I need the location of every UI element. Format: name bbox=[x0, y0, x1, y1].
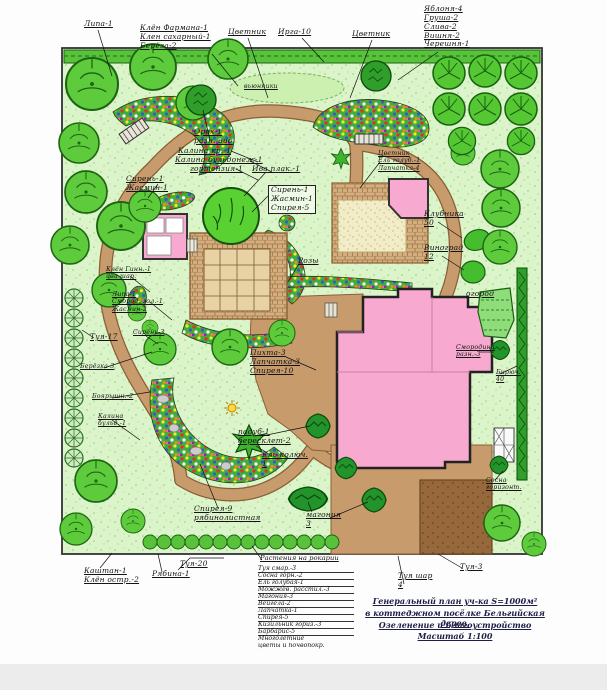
callout-siren-3: Сирень-3 bbox=[133, 329, 164, 336]
callout-smorodina: Смородина разн.-3 bbox=[456, 344, 495, 359]
callout-tuya-20: Туя-20 bbox=[180, 560, 208, 569]
title-line-3: Озеленение и благоустройство bbox=[362, 620, 548, 630]
photo-edge bbox=[0, 664, 607, 690]
callout-lipa: Липа-1 bbox=[84, 20, 113, 29]
weeping-willow bbox=[203, 188, 259, 244]
callout-maple-stack: Клён Фармана-1 Клен сахарный-1 Берёза-2 bbox=[140, 24, 211, 51]
callout-tuya-17: Туя-17 bbox=[90, 333, 118, 342]
callout-ryabina: Рябина-1 bbox=[152, 570, 190, 579]
porch-steps bbox=[325, 303, 337, 317]
callout-tuya-3: Туя-3 bbox=[460, 563, 483, 572]
callout-biryuchina: Бирюч. 40 bbox=[496, 369, 521, 384]
gazebo-area bbox=[332, 179, 428, 263]
legend-header: Растения на рокарии bbox=[260, 554, 339, 562]
garden-plan-page: Липа-1 Клён Фармана-1 Клен сахарный-1 Бе… bbox=[0, 0, 607, 690]
callout-beryozka: Берёзка-3 bbox=[80, 363, 114, 370]
callout-kashtan: Каштан-1 Клён остр.-2 bbox=[84, 567, 139, 585]
callout-sosna-goriz: Сосна горизонт. bbox=[486, 477, 522, 492]
callout-siren-zhasmin: Сирень-1 Жасмин-1 bbox=[126, 175, 168, 193]
callout-el-kolyuchaya: Ель колюч. 1 bbox=[262, 451, 308, 469]
callout-magoniya: магония 3 bbox=[306, 511, 341, 529]
callout-irga: Ирга-10 bbox=[278, 28, 311, 37]
callout-boyaryshnik: Боярышн.-2 bbox=[92, 393, 133, 400]
callout-klubnika: Клубника 50 bbox=[424, 210, 464, 228]
callout-kalina-buld-left: Калина бульд.-1 bbox=[98, 413, 126, 428]
callout-flowerbed-right: Цветник bbox=[352, 30, 390, 39]
callout-gazebo-stack: Цветник Ель голуб.-1 Лапчатка-4 bbox=[378, 150, 420, 172]
callout-padub: падуб-1 бересклет-2 bbox=[238, 428, 291, 446]
callout-fruit-stack: Яблоня-4 Груша-2 Слива-2 Вишня-2 Черешня… bbox=[424, 5, 470, 49]
callout-tuya-shar: Туя шар 4 bbox=[398, 572, 432, 590]
callout-shrub-box: Сирень-1 Жасмин-1 Спирея-5 bbox=[268, 185, 316, 214]
callout-rozy: Розы bbox=[298, 257, 319, 266]
callout-pihta-box: Пихта-3 Лапчатка-3 Спирея-10 bbox=[250, 349, 300, 376]
callout-spireya-ryab: Спирея-9 рябинолистная bbox=[194, 505, 261, 523]
callout-gortenziya: гортензия-1 bbox=[190, 165, 243, 174]
legend-item: Многолетние цветы и почвопокр. bbox=[258, 635, 354, 649]
callout-flowerbed-left: Цветник bbox=[228, 28, 266, 37]
callout-vinograd: Виноград 12 bbox=[424, 244, 463, 262]
title-line-4: Масштаб 1:100 bbox=[362, 631, 548, 641]
callout-lawn-oval: вьюнники bbox=[244, 83, 278, 90]
callout-klen-ginn: Клён Гинн.-1 ива шар. bbox=[106, 266, 151, 281]
patio bbox=[190, 233, 287, 319]
callout-lipa-stack-left: Липа-1 Смород. зол.-1 Жасмин-2 bbox=[112, 291, 163, 313]
callout-iva-plak: Ива плак.-1 bbox=[252, 165, 300, 174]
sun-flower-symbol bbox=[224, 400, 240, 416]
gazebo bbox=[389, 179, 428, 218]
title-line-1: Генеральный план уч-ка S=1000м² bbox=[362, 596, 548, 606]
callout-ogorod: огород bbox=[466, 290, 494, 299]
callout-walnut: Орех-1 разн. вид bbox=[194, 128, 233, 146]
